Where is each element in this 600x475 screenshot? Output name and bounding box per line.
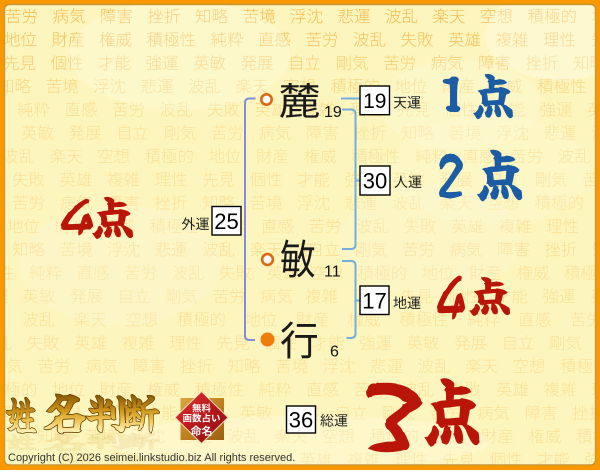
svg-text:6: 6 (330, 344, 339, 361)
svg-text:19: 19 (363, 90, 386, 113)
svg-text:30: 30 (363, 169, 387, 194)
svg-text:36: 36 (289, 408, 313, 433)
svg-text:Copyright (C) 2026 seimei.link: Copyright (C) 2026 seimei.linkstudio.biz… (8, 452, 295, 464)
svg-text:25: 25 (214, 209, 238, 234)
svg-text:17: 17 (362, 288, 386, 313)
svg-text:19: 19 (324, 104, 342, 121)
svg-text:11: 11 (324, 264, 341, 281)
